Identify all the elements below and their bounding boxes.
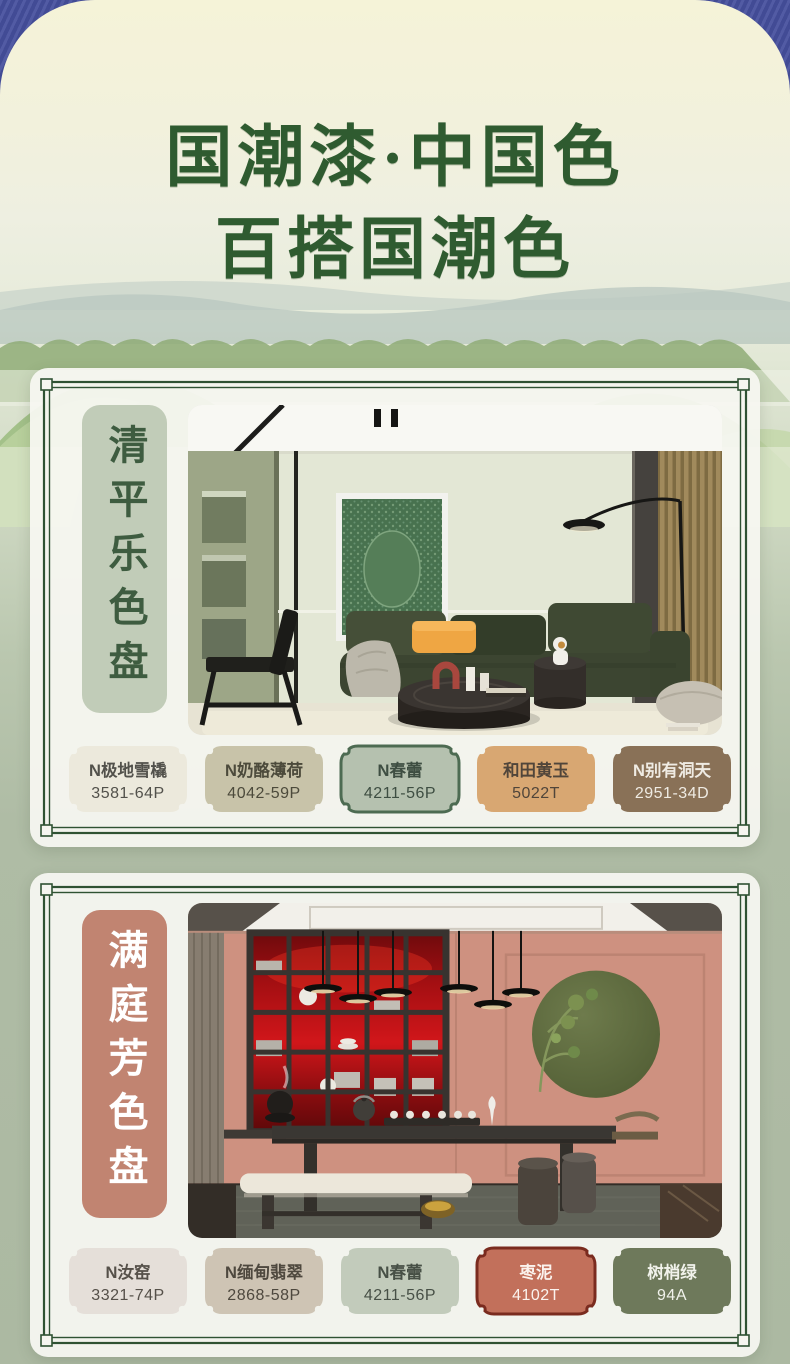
swatch-name: N春蕾	[378, 760, 423, 780]
living-room-illustration	[188, 405, 722, 735]
color-swatch-featured: 枣泥4102T	[474, 1245, 598, 1317]
color-swatch: N别有洞天2951-34D	[610, 743, 734, 815]
color-swatch: 和田黄玉5022T	[474, 743, 598, 815]
poster-page: 国潮漆·中国色 百搭国潮色 清平乐色盘	[0, 0, 790, 1364]
swatch-code: 2868-58P	[227, 1287, 300, 1304]
swatch-name: 树梢绿	[647, 1262, 697, 1282]
title-line-1: 国潮漆·中国色	[0, 112, 790, 204]
gold-bowl	[421, 1200, 455, 1218]
color-swatch: N极地雪橇3581-64P	[66, 743, 190, 815]
title-line-2: 百搭国潮色	[0, 204, 790, 296]
swatch-code: 3581-64P	[91, 785, 164, 802]
panel-label-qingpingyue: 清平乐色盘	[82, 405, 167, 713]
color-swatch-featured: N春蕾4211-56P	[338, 743, 462, 815]
swatch-name: N汝窑	[106, 1262, 151, 1282]
sofa	[340, 603, 690, 697]
color-swatch: N春蕾4211-56P	[338, 1245, 462, 1317]
color-swatch: N汝窑3321-74P	[66, 1245, 190, 1317]
swatch-code: 5022T	[512, 785, 560, 802]
swatch-code: 94A	[657, 1287, 687, 1304]
swatch-name: N缅甸翡翠	[225, 1262, 303, 1282]
panel-qingpingyue: 清平乐色盘	[30, 368, 760, 847]
swatch-name: 和田黄玉	[503, 760, 569, 780]
swatch-code: 4042-59P	[227, 785, 300, 802]
swatch-name: N奶酪薄荷	[225, 760, 303, 780]
swatch-name: N极地雪橇	[89, 760, 167, 780]
astronaut-figurine	[553, 637, 568, 665]
swatch-code: 4102T	[512, 1287, 560, 1304]
color-swatch: N奶酪薄荷4042-59P	[202, 743, 326, 815]
room-photo-tea-room	[188, 903, 722, 1238]
curtain	[188, 933, 224, 1184]
swatch-row-mantingfang: N汝窑3321-74P N缅甸翡翠2868-58P N春蕾4211-56P 枣泥…	[66, 1245, 734, 1317]
room-photo-living-room	[188, 405, 722, 735]
swatch-name: N别有洞天	[633, 760, 711, 780]
swatch-name: 枣泥	[519, 1262, 554, 1282]
color-swatch: N缅甸翡翠2868-58P	[202, 1245, 326, 1317]
ceiling	[188, 405, 722, 451]
page-title: 国潮漆·中国色 百搭国潮色	[0, 112, 790, 296]
panel-label-mantingfang: 满庭芳色盘	[82, 910, 167, 1218]
panel-mantingfang: 满庭芳色盘	[30, 873, 760, 1357]
swatch-code: 2951-34D	[635, 785, 709, 802]
swatch-code: 4211-56P	[364, 1287, 436, 1304]
swatch-code: 4211-56P	[364, 785, 436, 802]
swatch-code: 3321-74P	[91, 1287, 164, 1304]
color-swatch: 树梢绿94A	[610, 1245, 734, 1317]
swatch-name: N春蕾	[378, 1262, 423, 1282]
tea-room-illustration	[188, 903, 722, 1238]
swatch-row-qingpingyue: N极地雪橇3581-64P N奶酪薄荷4042-59P N春蕾4211-56P …	[66, 743, 734, 815]
